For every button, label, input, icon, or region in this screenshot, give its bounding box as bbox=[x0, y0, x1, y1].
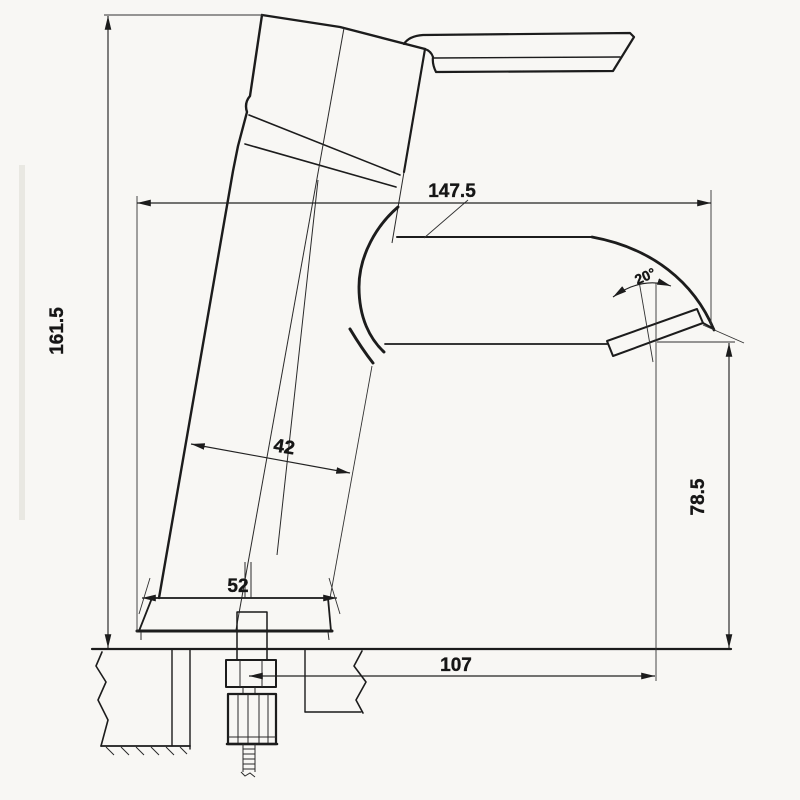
counter-section bbox=[92, 649, 731, 755]
spout-left-s-curve bbox=[359, 207, 398, 352]
faucet-outline bbox=[137, 15, 714, 640]
mounting-washer bbox=[226, 660, 276, 687]
counter-hatch-left bbox=[106, 747, 187, 755]
dimension-lines bbox=[108, 16, 729, 676]
handle-housing-right-edge bbox=[404, 49, 425, 172]
ext-body-diameter bbox=[330, 366, 372, 598]
thread-marks bbox=[243, 749, 255, 769]
dim-spout-reach-label: 107 bbox=[440, 655, 472, 676]
dim-overall-height-label: 161.5 bbox=[47, 307, 68, 355]
ext-leader-width bbox=[424, 200, 468, 238]
lever-handle-outline bbox=[404, 33, 634, 72]
angle-reference-line bbox=[639, 281, 653, 362]
ext-aerator-plane bbox=[703, 325, 744, 343]
dim-body-diameter-label: 42 bbox=[272, 435, 296, 459]
base-lip-ticks bbox=[141, 632, 329, 640]
dim-aerator-angle-label: 20° bbox=[632, 264, 658, 287]
collar-joint-line-2 bbox=[245, 144, 396, 187]
dimline-body-diameter bbox=[191, 444, 350, 473]
aerator-face bbox=[607, 309, 703, 356]
body-seam-line bbox=[236, 28, 344, 630]
threaded-rod bbox=[243, 744, 255, 772]
dimension-labels: 147.5 161.5 42 52 78.5 107 20° bbox=[47, 181, 709, 676]
counter-break-left bbox=[96, 652, 108, 746]
dim-outlet-height-label: 78.5 bbox=[688, 478, 709, 515]
base-side-edges bbox=[139, 598, 331, 631]
faucet-dimension-drawing: 147.5 161.5 42 52 78.5 107 20° bbox=[0, 0, 800, 800]
counter-break-right bbox=[354, 651, 366, 713]
dim-base-width-label: 52 bbox=[227, 576, 248, 597]
washer-facets bbox=[240, 660, 262, 687]
spout-top-curve bbox=[592, 237, 714, 330]
dim-overall-width-label: 147.5 bbox=[428, 181, 476, 202]
rod-break-mark bbox=[241, 772, 255, 777]
technical-drawing-page: 147.5 161.5 42 52 78.5 107 20° bbox=[0, 0, 800, 800]
body-left-edge bbox=[159, 15, 262, 598]
extension-lines bbox=[104, 15, 744, 681]
shank-tube bbox=[237, 612, 267, 660]
lever-handle-inner-line bbox=[434, 57, 620, 58]
